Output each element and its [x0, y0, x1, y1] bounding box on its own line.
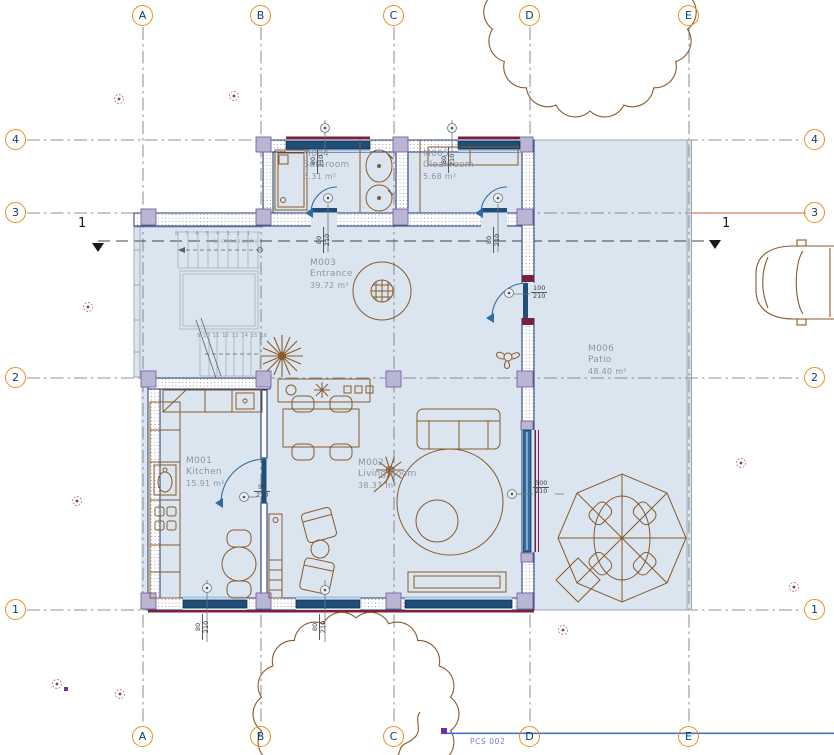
grid-bubble-A-top[interactable]: A — [132, 5, 153, 26]
tree-bottom[interactable] — [253, 612, 459, 755]
stair-note: 16 STPS 18.0/27.0 — [213, 240, 258, 245]
car-mirror — [797, 319, 806, 325]
room-label-kitchen: M001 Kitchen 15.91 m² — [186, 456, 225, 489]
room-code: M003 — [310, 258, 353, 269]
dim-cloakroom-window: 80210 — [441, 147, 457, 173]
room-label-patio: M006 Patio 48.40 m² — [588, 344, 627, 377]
dim-bathroom-window: 80210 — [310, 148, 326, 174]
grid-bubble-E-bottom[interactable]: E — [678, 726, 699, 747]
room-code: M006 — [588, 344, 627, 355]
grid-bubble-2-right[interactable]: 2 — [804, 367, 825, 388]
dim-cloakroom-door: 80210 — [486, 227, 502, 253]
footer-node — [441, 728, 447, 734]
floorplan-canvas: A B C D E A B C D E 4 3 2 1 4 3 2 1 1 1 … — [0, 0, 834, 755]
grid-bubble-4-right[interactable]: 4 — [804, 129, 825, 150]
dim-living-bottom-window: 80210 — [312, 614, 328, 640]
room-name: Kitchen — [186, 467, 225, 478]
grid-bubble-E-top[interactable]: E — [678, 5, 699, 26]
car[interactable] — [756, 240, 834, 325]
grid-bubble-B-bottom[interactable]: B — [250, 726, 271, 747]
grid-bubble-2-left[interactable]: 2 — [5, 367, 26, 388]
patio-umbrella-table[interactable] — [558, 474, 686, 602]
room-name: Patio — [588, 355, 627, 366]
grid-bubble-3-right[interactable]: 3 — [804, 202, 825, 223]
section-arrow-left — [92, 243, 104, 252]
section-marker-label-left: 1 — [78, 216, 86, 231]
stair-tread-numbers-bottom: 9 10 11 12 13 14 15 16 — [197, 333, 273, 339]
grid-bubble-3-left[interactable]: 3 — [5, 202, 26, 223]
grid-bubble-1-left[interactable]: 1 — [5, 599, 26, 620]
entrance-door-jamb-bottom — [522, 318, 534, 325]
dim-kitchen-window: 80210 — [195, 614, 211, 640]
room-name: Entrance — [310, 269, 353, 280]
car-mirror — [797, 240, 806, 246]
grid-bubble-1-right[interactable]: 1 — [804, 599, 825, 620]
dim-bathroom-door: 80210 — [316, 227, 332, 253]
point-marker — [64, 687, 68, 691]
room-code: M001 — [186, 456, 225, 467]
grid-bubble-B-top[interactable]: B — [250, 5, 271, 26]
room-code: M002 — [358, 458, 417, 469]
room-area: 38.37 m² — [358, 481, 417, 491]
entrance-door-jamb-top — [522, 275, 534, 282]
section-arrow-right — [709, 240, 721, 249]
dim-entrance-door: 100210 — [531, 285, 547, 301]
grid-bubble-D-top[interactable]: D — [519, 5, 540, 26]
grid-bubble-C-top[interactable]: C — [383, 5, 404, 26]
floorplan-drawing — [0, 0, 834, 755]
grid-bubble-C-bottom[interactable]: C — [383, 726, 404, 747]
stair-tread-numbers-top: 8 7 6 5 4 3 2 1 — [175, 231, 263, 237]
wall-kitchen-top — [148, 378, 270, 389]
footer-label: PCS 002 — [470, 737, 505, 746]
room-area: 48.40 m² — [588, 367, 627, 377]
room-area: 5.68 m² — [423, 172, 474, 182]
room-area: 39.72 m² — [310, 281, 353, 291]
dim-living-window: 300210 — [533, 480, 549, 496]
grid-bubble-D-bottom[interactable]: D — [519, 726, 540, 747]
grid-bubble-4-left[interactable]: 4 — [5, 129, 26, 150]
entrance-floor[interactable] — [134, 213, 534, 378]
room-label-living: M002 Living Room 38.37 m² — [358, 458, 417, 491]
kitchen-living-floor[interactable] — [141, 378, 534, 610]
shrub[interactable] — [261, 335, 303, 377]
footer-line — [443, 733, 834, 735]
tree-top[interactable] — [484, 0, 696, 117]
room-name: Living Room — [358, 469, 417, 480]
grid-bubble-A-bottom[interactable]: A — [132, 726, 153, 747]
footer-reference — [441, 728, 834, 734]
room-label-entrance: M003 Entrance 39.72 m² — [310, 258, 353, 291]
dim-kitchen-door: 90210 — [254, 484, 270, 500]
section-marker-label-right: 1 — [722, 216, 730, 231]
room-area: 15.91 m² — [186, 479, 225, 489]
